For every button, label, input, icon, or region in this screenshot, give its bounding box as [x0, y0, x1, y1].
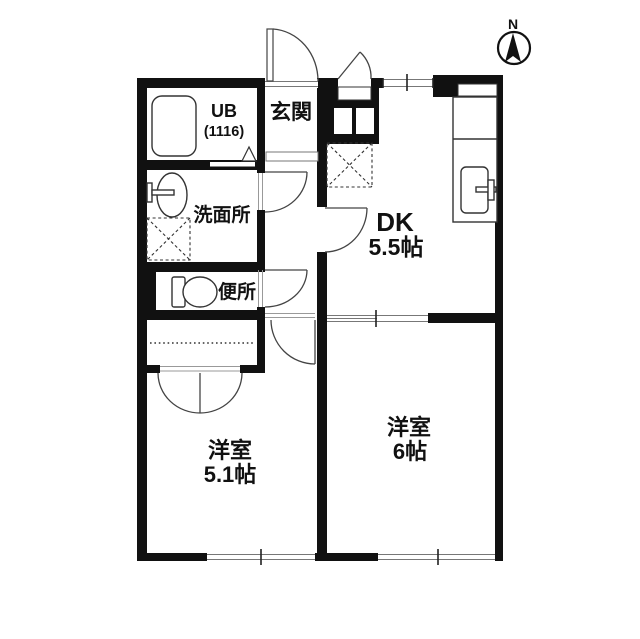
- closet-wall-stub-left: [147, 365, 160, 373]
- kitchen-top-cabinet: [458, 84, 497, 96]
- compass-label: N: [508, 16, 518, 32]
- label-room6: 洋室: [387, 415, 431, 440]
- label-room51-size: 5.1帖: [204, 462, 257, 487]
- wall-below-senmenjo: [137, 262, 265, 272]
- label-room51: 洋室: [208, 438, 252, 463]
- wall-hall-left-a: [257, 78, 265, 173]
- wall-center-b: [317, 252, 327, 561]
- label-room6-size: 6帖: [393, 439, 427, 464]
- label-ub-size: (1116): [204, 124, 244, 140]
- kitchen-counter-icon: [453, 97, 497, 222]
- wall-dk-room6: [428, 313, 495, 323]
- bathtub-icon: [152, 96, 196, 156]
- wall-bottom-right: [495, 553, 503, 561]
- shoe-cabinet-opening-right: [356, 108, 374, 134]
- wall-below-benjo: [137, 310, 265, 320]
- label-dk: DK: [376, 207, 414, 237]
- wall-hall-left-b: [257, 210, 265, 270]
- ub-door-slit: [210, 162, 255, 167]
- label-benjo: 便所: [218, 281, 256, 303]
- label-ub: UB: [211, 101, 237, 121]
- wall-bottom-left: [137, 553, 207, 561]
- toilet-bowl: [183, 277, 217, 307]
- wall-top-mid2: [371, 78, 383, 88]
- closet-wall-stub-right: [240, 365, 265, 373]
- shoe-cabinet-opening-left: [334, 108, 352, 134]
- door-leaf: [267, 29, 273, 81]
- washbasin-faucet: [152, 190, 174, 195]
- label-genkan: 玄関: [270, 100, 312, 124]
- label-senmenjo: 洗面所: [193, 203, 250, 226]
- pipe-space-stub: [147, 268, 156, 315]
- label-dk-size: 5.5帖: [369, 234, 424, 260]
- wall-top-left: [137, 78, 265, 88]
- kitchen-faucet: [488, 180, 494, 200]
- toilet-icon: [172, 277, 217, 307]
- floor-plan-page: N UB (1116) 玄関 洗面所 便所 DK 5.5帖 洋室 6帖 洋室 5…: [0, 0, 640, 639]
- washbasin-faucet: [147, 183, 152, 202]
- entrance-step: [266, 152, 318, 161]
- entrance-storage-compartment: [338, 87, 371, 100]
- floor-plan-drawing: N UB (1116) 玄関 洗面所 便所 DK 5.5帖 洋室 6帖 洋室 5…: [0, 0, 640, 639]
